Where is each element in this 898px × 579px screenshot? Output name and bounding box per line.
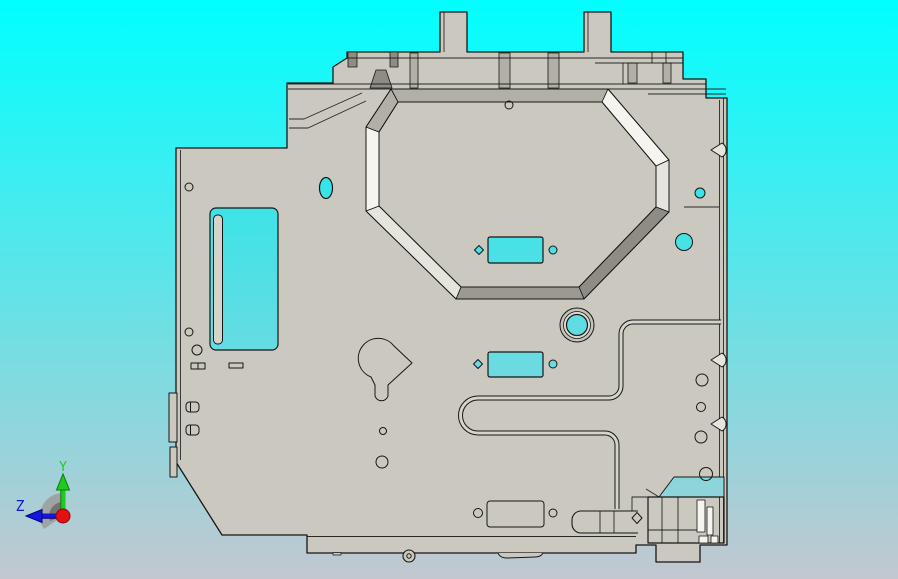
connector-cutout-lower: [488, 352, 543, 377]
right-hole-large: [676, 234, 693, 251]
right-hole-small: [695, 188, 705, 198]
cad-viewport[interactable]: Y Z: [0, 0, 898, 579]
obround-hole: [320, 178, 333, 199]
y-axis-label: Y: [59, 460, 67, 475]
left-edge-tabs: [169, 393, 177, 477]
origin-ball[interactable]: [56, 509, 70, 523]
connector-cutout-upper: [488, 237, 543, 263]
collared-hole: [560, 308, 594, 342]
left-cutout-rail: [214, 215, 223, 344]
z-axis-label: Z: [15, 497, 24, 515]
cad-window: Y Z: [0, 0, 898, 579]
